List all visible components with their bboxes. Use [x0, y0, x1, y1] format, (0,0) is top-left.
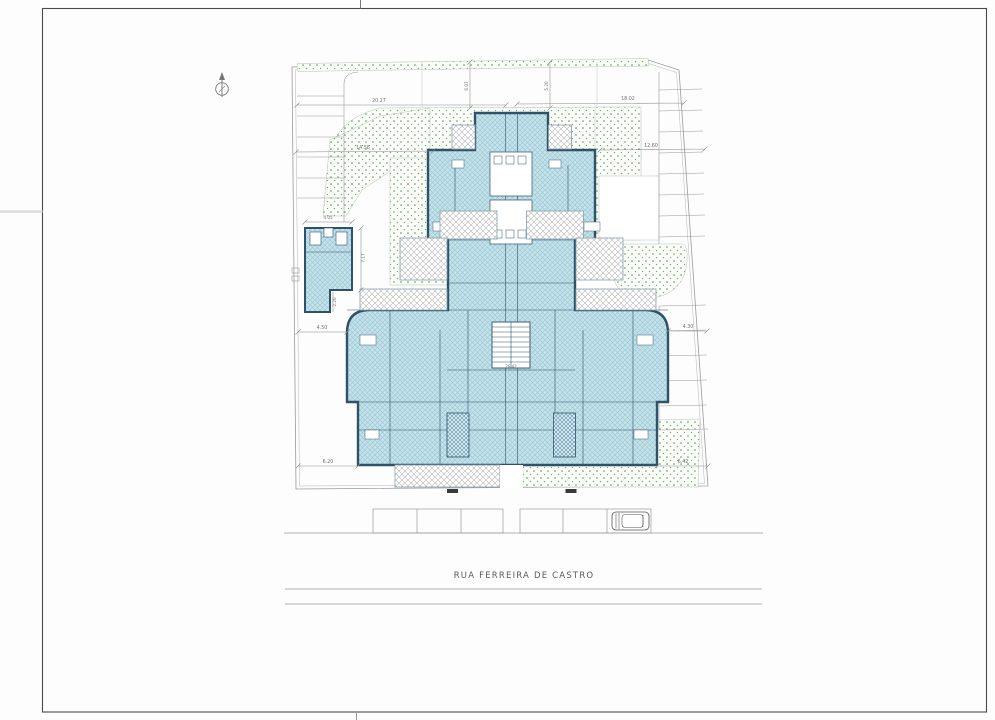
dim-side-left: 4.50	[317, 325, 328, 331]
annex-building	[305, 228, 352, 312]
right-court-pad	[599, 176, 659, 240]
dim-cap-right: 5.20	[544, 81, 549, 91]
dim-bottom-left: 6.20	[323, 459, 334, 465]
street-label: RUA FERREIRA DE CASTRO	[454, 571, 595, 581]
dim-top-left: 20.27	[372, 98, 386, 104]
dim-annex-width: 4.05	[323, 215, 333, 220]
drawing-sheet: 20.27 18.02 14.56 12.60 6.07 5.20 4.05 7…	[0, 0, 995, 720]
dim-corridor: 26.42	[505, 364, 517, 369]
dim-upper-left: 14.56	[356, 145, 370, 151]
entrance-marker-left	[447, 489, 458, 493]
north-symbol	[216, 72, 229, 97]
dim-side-right: 4.30	[683, 324, 694, 330]
dim-annex-step: 2.20	[332, 297, 337, 307]
dim-bottom-right: 6.42	[678, 459, 689, 465]
site-plan-svg: 20.27 18.02 14.56 12.60 6.07 5.20 4.05 7…	[0, 0, 995, 720]
stair-core	[492, 322, 530, 368]
dim-top-right: 18.02	[621, 96, 635, 102]
dim-cap-left: 6.07	[464, 81, 469, 91]
dim-upper-right: 12.60	[644, 143, 658, 149]
dim-annex-depth: 7.17	[361, 253, 366, 263]
street	[284, 533, 763, 604]
stair-shaft-right	[554, 413, 576, 457]
landscape-top-strip	[297, 59, 649, 72]
stair-shaft-left	[447, 413, 469, 457]
car-icon	[612, 512, 649, 530]
entrance-marker-right	[566, 489, 577, 493]
parking-row-bottom	[373, 509, 651, 533]
entry-walk	[500, 465, 523, 488]
